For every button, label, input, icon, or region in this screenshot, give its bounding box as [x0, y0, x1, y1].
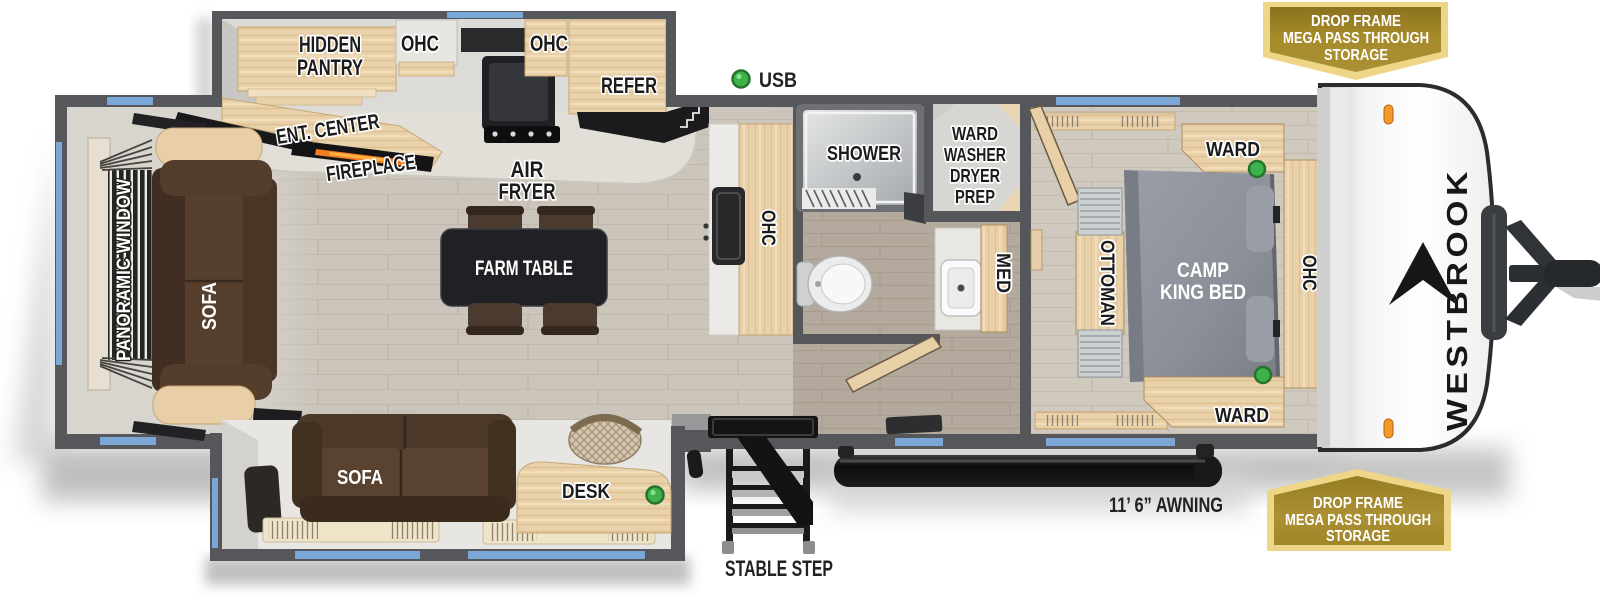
svg-text:HIDDEN: HIDDEN	[299, 32, 361, 57]
svg-text:OHC: OHC	[1298, 255, 1319, 291]
svg-text:PANTRY: PANTRY	[297, 55, 363, 80]
svg-text:STORAGE: STORAGE	[1326, 528, 1390, 545]
svg-text:DROP FRAME: DROP FRAME	[1313, 495, 1403, 512]
svg-text:DRYER: DRYER	[950, 166, 1000, 186]
svg-text:OHC: OHC	[401, 31, 439, 56]
svg-text:PREP: PREP	[955, 187, 995, 207]
svg-text:KING BED: KING BED	[1160, 281, 1246, 304]
svg-text:USB: USB	[759, 69, 797, 92]
svg-text:FRYER: FRYER	[499, 179, 556, 204]
svg-text:CAMP: CAMP	[1177, 259, 1229, 282]
svg-text:SHOWER: SHOWER	[827, 143, 901, 165]
svg-text:SOFA: SOFA	[199, 282, 221, 330]
svg-text:WARD: WARD	[1206, 139, 1260, 161]
svg-text:DROP FRAME: DROP FRAME	[1311, 13, 1401, 30]
svg-text:WARD: WARD	[1215, 405, 1269, 427]
svg-text:PANORAMIC WINDOW: PANORAMIC WINDOW	[114, 179, 135, 361]
svg-text:MED: MED	[992, 253, 1013, 293]
svg-text:STABLE STEP: STABLE STEP	[725, 556, 833, 581]
svg-text:MEGA PASS THROUGH: MEGA PASS THROUGH	[1283, 30, 1429, 47]
svg-text:DESK: DESK	[562, 481, 610, 503]
svg-text:OTTOMAN: OTTOMAN	[1096, 240, 1117, 326]
svg-text:SOFA: SOFA	[337, 467, 383, 489]
svg-text:STORAGE: STORAGE	[1324, 47, 1388, 64]
svg-text:11’ 6” AWNING: 11’ 6” AWNING	[1109, 494, 1223, 517]
svg-text:MEGA PASS THROUGH: MEGA PASS THROUGH	[1285, 512, 1431, 529]
svg-text:OHC: OHC	[757, 210, 778, 246]
svg-text:REFER: REFER	[601, 73, 657, 98]
svg-text:FARM TABLE: FARM TABLE	[475, 257, 573, 280]
svg-text:WARD: WARD	[952, 124, 998, 144]
svg-text:WESTBROOK: WESTBROOK	[1442, 167, 1474, 431]
svg-text:OHC: OHC	[530, 31, 568, 56]
svg-text:WASHER: WASHER	[944, 145, 1006, 165]
